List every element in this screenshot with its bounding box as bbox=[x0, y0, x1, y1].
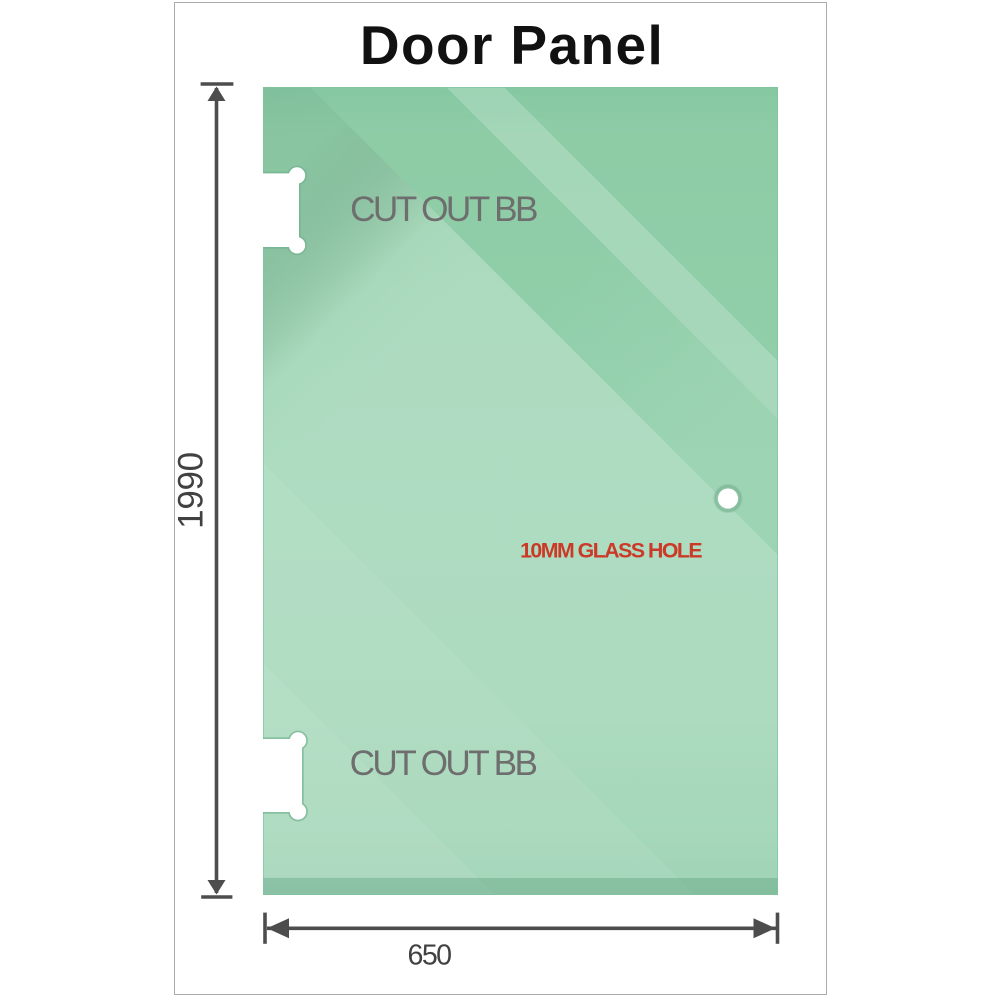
svg-text:CUT OUT BB: CUT OUT BB bbox=[350, 190, 537, 229]
svg-text:Door Panel: Door Panel bbox=[360, 14, 664, 76]
svg-text:CUT OUT BB: CUT OUT BB bbox=[350, 744, 537, 783]
svg-text:1990: 1990 bbox=[172, 452, 211, 529]
svg-text:650: 650 bbox=[408, 940, 452, 972]
svg-text:10MM GLASS HOLE: 10MM GLASS HOLE bbox=[520, 539, 702, 563]
